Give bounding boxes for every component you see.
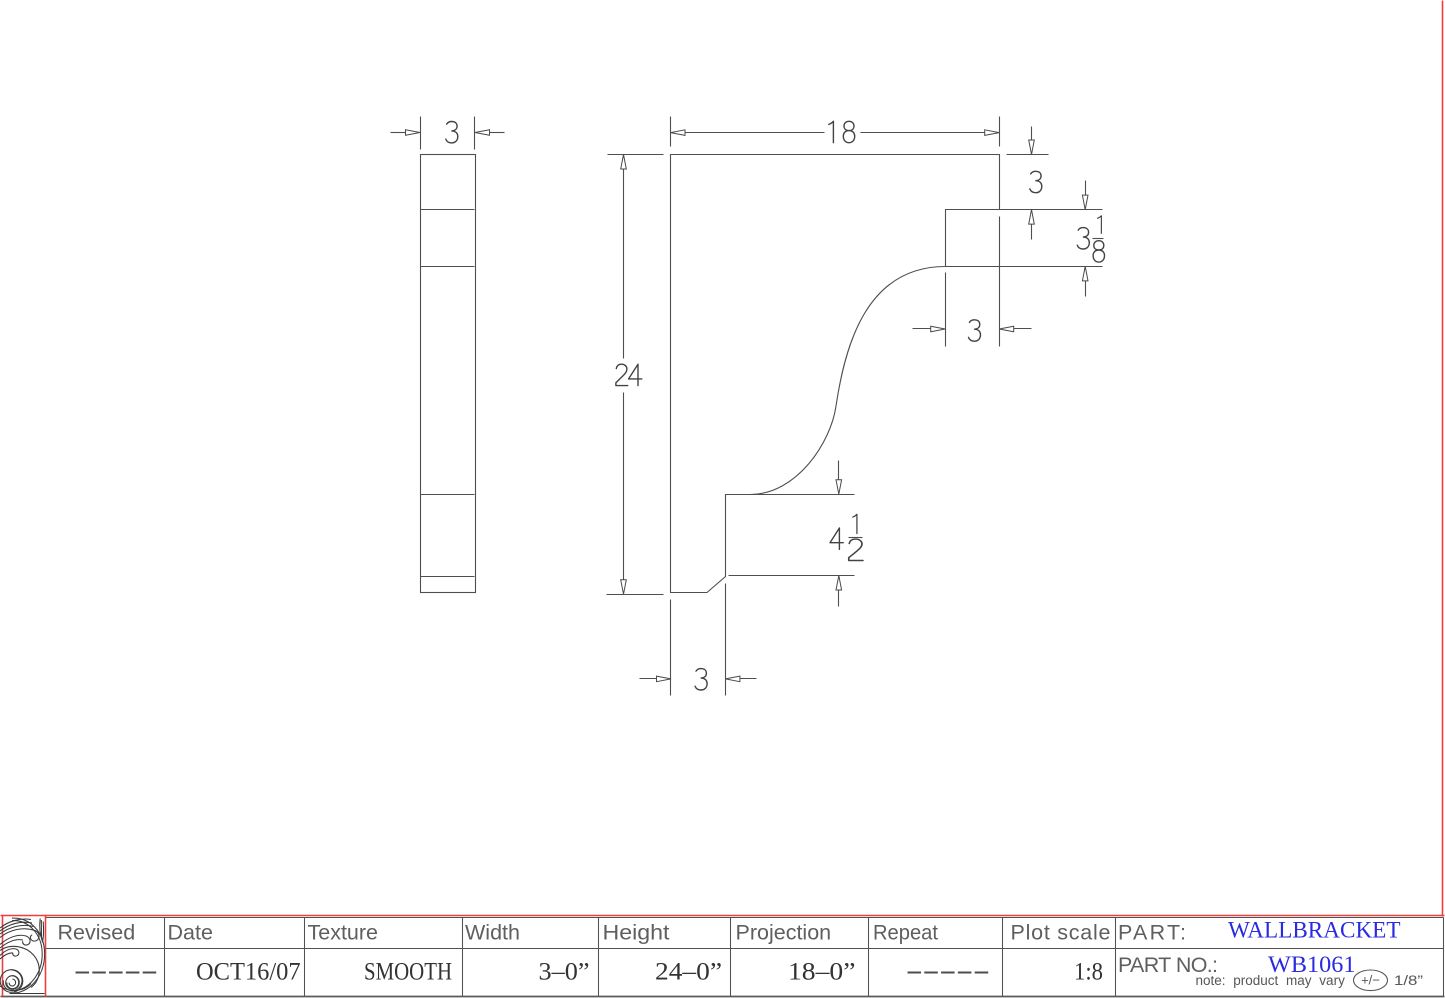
svg-text:Projection: Projection bbox=[736, 921, 832, 945]
svg-text:Repeat: Repeat bbox=[873, 921, 938, 945]
svg-text:1:8: 1:8 bbox=[1074, 959, 1103, 986]
svg-text:SMOOTH: SMOOTH bbox=[364, 959, 452, 986]
svg-text:Width: Width bbox=[465, 921, 520, 945]
svg-text:PART:: PART: bbox=[1118, 921, 1186, 945]
svg-text:Revised: Revised bbox=[58, 921, 136, 945]
svg-text:3–0”: 3–0” bbox=[539, 959, 590, 986]
svg-text:OCT16/07: OCT16/07 bbox=[196, 959, 301, 986]
svg-text:1/8”: 1/8” bbox=[1394, 973, 1423, 988]
svg-text:18–0”: 18–0” bbox=[788, 959, 856, 986]
svg-text:Height: Height bbox=[603, 921, 670, 945]
svg-text:Texture: Texture bbox=[308, 921, 379, 945]
svg-text:Date: Date bbox=[168, 921, 213, 945]
svg-text:Plot scale: Plot scale bbox=[1011, 921, 1111, 945]
svg-text:24–0”: 24–0” bbox=[655, 959, 722, 986]
svg-text:note: product may vary: note: product may vary bbox=[1196, 973, 1346, 988]
svg-text:WALLBRACKET: WALLBRACKET bbox=[1228, 918, 1401, 943]
svg-text:+/−: +/− bbox=[1361, 973, 1380, 988]
